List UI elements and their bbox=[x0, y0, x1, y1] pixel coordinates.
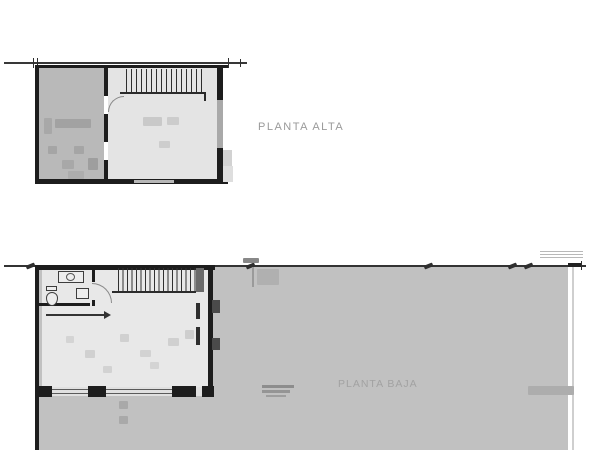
stairs bbox=[126, 69, 206, 93]
dimension-tick bbox=[581, 261, 582, 270]
furniture-blob bbox=[168, 338, 179, 346]
wall-segment bbox=[196, 327, 200, 345]
terrain-blob bbox=[119, 401, 128, 409]
stair-rail bbox=[120, 92, 206, 94]
wall-segment bbox=[35, 179, 228, 184]
furniture-blob bbox=[120, 334, 129, 342]
label-blob bbox=[68, 171, 84, 179]
window-line bbox=[52, 389, 88, 390]
wall-segment bbox=[35, 65, 39, 184]
exterior-step bbox=[223, 150, 232, 166]
exterior-step bbox=[223, 166, 233, 182]
wall-segment bbox=[104, 114, 108, 142]
dimension-text-blob bbox=[243, 258, 259, 263]
pilaster bbox=[212, 338, 220, 350]
stair-rail bbox=[112, 291, 196, 293]
window-line bbox=[106, 393, 172, 394]
stair-rail bbox=[204, 92, 206, 101]
dimension-tick bbox=[568, 263, 582, 267]
window-line bbox=[52, 393, 88, 394]
annotation-lines bbox=[540, 257, 583, 258]
furniture-blob bbox=[140, 350, 151, 357]
label-blob bbox=[167, 117, 179, 125]
stair-arrow-head bbox=[104, 311, 111, 319]
wall-segment bbox=[35, 265, 39, 450]
annotation-lines bbox=[540, 251, 583, 252]
dimension-tick bbox=[26, 262, 36, 269]
upper-plan-title: PLANTA ALTA bbox=[258, 121, 344, 133]
wall-segment bbox=[92, 267, 95, 282]
label-blob bbox=[62, 160, 74, 169]
column-post bbox=[38, 386, 52, 397]
dimension-tick bbox=[228, 58, 229, 68]
terrain-blob bbox=[119, 416, 128, 424]
toilet-tank bbox=[46, 286, 57, 291]
wall-segment bbox=[104, 65, 108, 96]
terrain-steps bbox=[266, 395, 286, 397]
pilaster bbox=[212, 300, 220, 313]
furniture-blob bbox=[103, 366, 112, 373]
sink-basin bbox=[66, 273, 75, 281]
column-post bbox=[88, 386, 106, 397]
window-line bbox=[106, 389, 172, 390]
column-post bbox=[202, 386, 214, 397]
furniture-blob bbox=[66, 336, 74, 343]
terrain-steps bbox=[262, 390, 290, 393]
stair-landing bbox=[196, 268, 204, 292]
stair-arrow-line bbox=[46, 314, 106, 316]
lower-plan-title: PLANTA BAJA bbox=[338, 378, 418, 390]
property-boundary-line bbox=[572, 267, 574, 450]
label-blob bbox=[88, 158, 98, 170]
label-blob bbox=[74, 146, 84, 154]
stairs bbox=[118, 268, 196, 292]
wall-segment bbox=[208, 265, 213, 395]
label-blob bbox=[48, 146, 57, 154]
bidet-fixture bbox=[76, 288, 89, 299]
upper-dimension-line bbox=[4, 62, 247, 64]
label-blob bbox=[143, 117, 162, 126]
gate-blob bbox=[257, 269, 279, 285]
terrain-steps bbox=[262, 385, 294, 388]
window-band bbox=[217, 100, 223, 148]
label-blob bbox=[44, 118, 52, 134]
terrain-text-blob bbox=[528, 386, 574, 395]
gate-post-line bbox=[252, 267, 254, 287]
annotation-lines bbox=[540, 254, 583, 255]
floor-plan-drawing: PLANTA ALTA bbox=[0, 0, 600, 450]
wall-segment bbox=[104, 160, 108, 184]
wall-segment bbox=[196, 303, 200, 319]
label-blob bbox=[55, 119, 91, 128]
column-post bbox=[172, 386, 196, 397]
window-band bbox=[134, 180, 174, 183]
furniture-blob bbox=[150, 362, 159, 369]
dimension-tick bbox=[240, 59, 241, 67]
furniture-blob bbox=[85, 350, 95, 358]
wall-segment bbox=[38, 303, 90, 306]
furniture-blob bbox=[185, 330, 194, 339]
wall-segment bbox=[35, 65, 228, 68]
dimension-tick bbox=[33, 58, 34, 68]
label-blob bbox=[159, 141, 170, 148]
